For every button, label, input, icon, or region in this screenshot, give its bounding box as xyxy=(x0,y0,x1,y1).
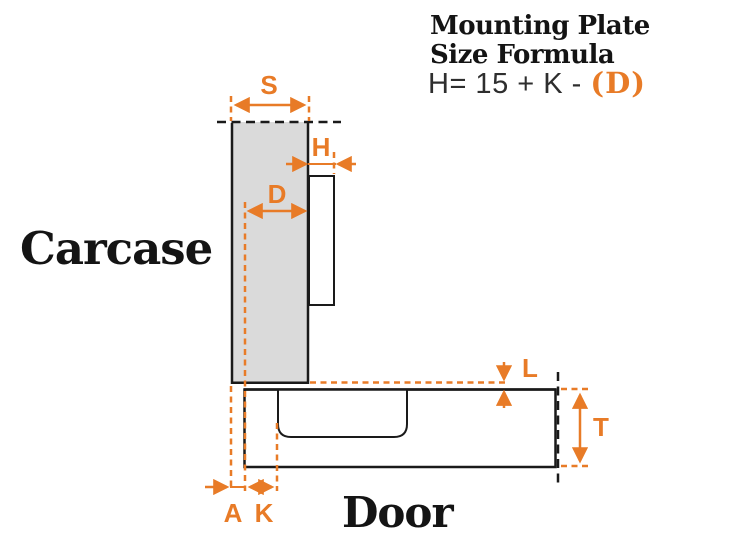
hinge-cup-recess xyxy=(278,390,407,437)
dim-label-d: D xyxy=(268,181,287,207)
title-block: Mounting Plate Size Formula xyxy=(430,12,650,70)
dim-label-s: S xyxy=(260,72,277,98)
title-line-1: Mounting Plate xyxy=(430,12,650,41)
door-label: Door xyxy=(342,492,453,534)
dim-label-k: K xyxy=(255,500,274,526)
mounting-plate xyxy=(309,176,334,305)
dim-label-t: T xyxy=(593,414,609,440)
formula: H= 15 + K - (D) xyxy=(428,69,646,99)
carcase-panel xyxy=(231,122,309,383)
hinge-mounting-diagram: Mounting Plate Size Formula H= 15 + K - … xyxy=(0,0,750,558)
dim-label-l: L xyxy=(522,355,538,381)
dim-label-h: H xyxy=(312,134,331,160)
formula-highlight-d: (D) xyxy=(590,66,646,100)
dim-label-a: A xyxy=(224,500,243,526)
formula-main: H= 15 + K - xyxy=(428,68,590,100)
carcase-label: Carcase xyxy=(20,226,212,271)
